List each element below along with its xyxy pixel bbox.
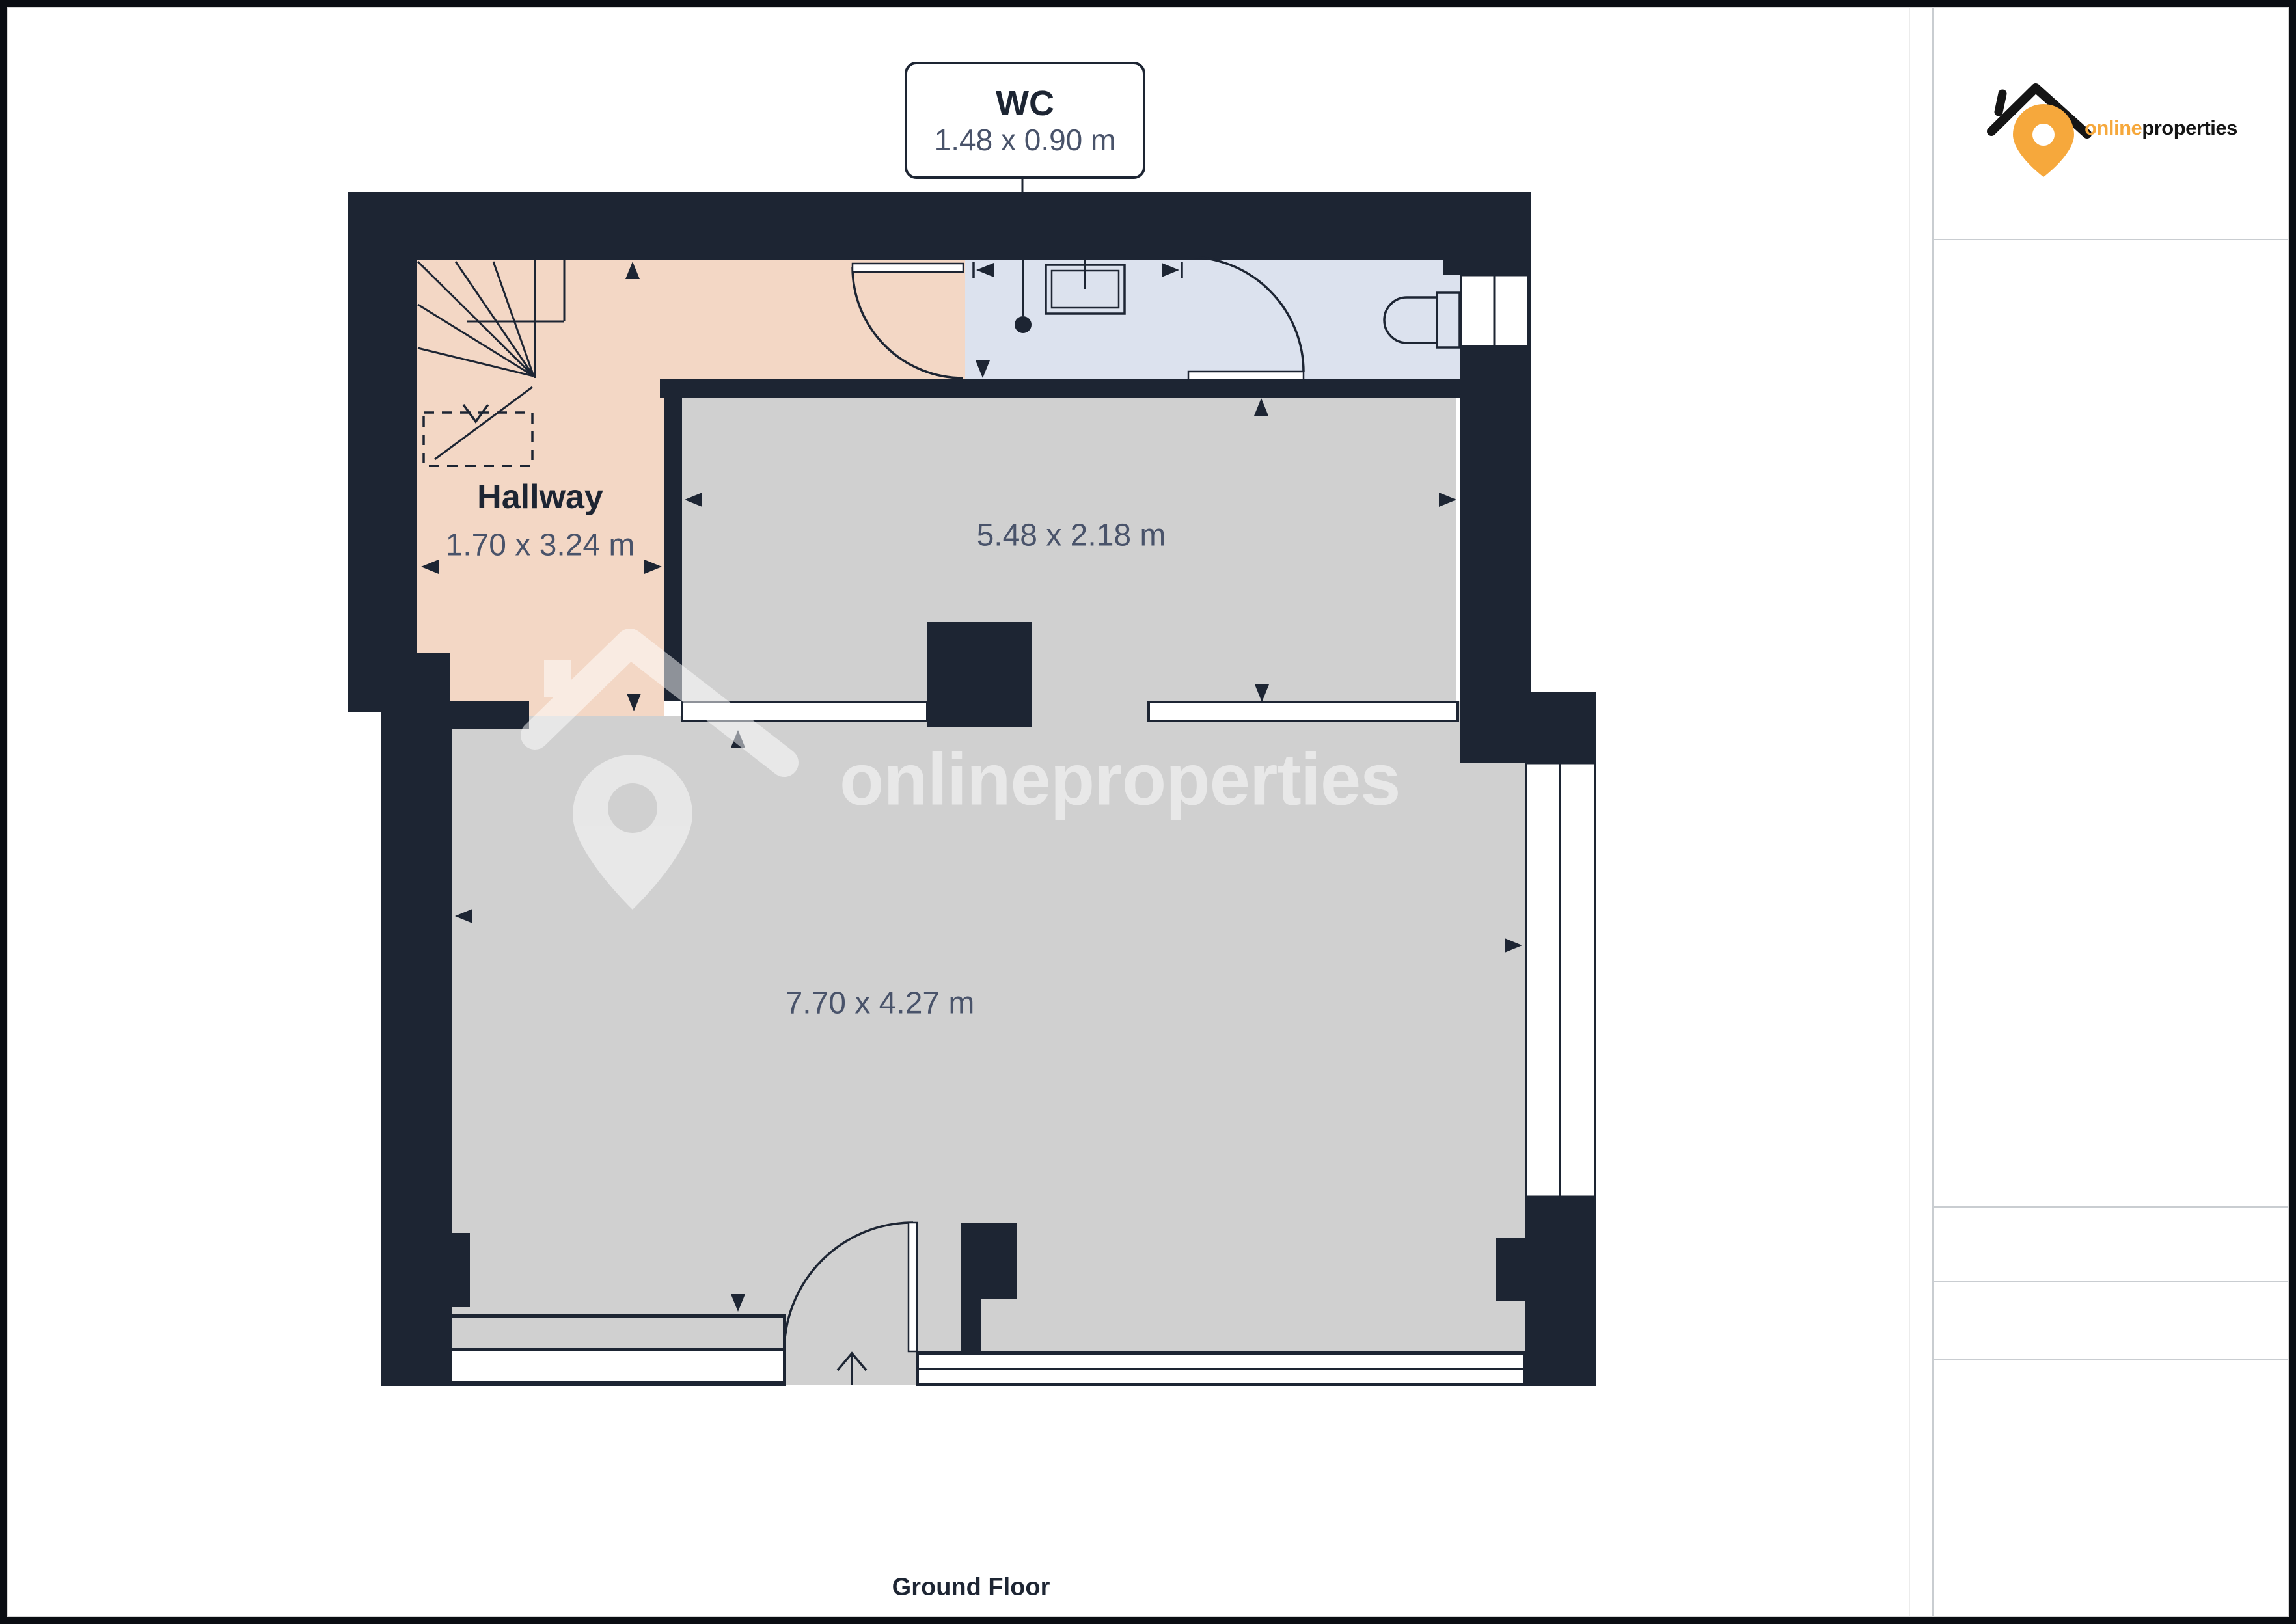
main-room-dimensions: 7.70 x 4.27 m (786, 986, 975, 1022)
watermark-text: onlineproperties (840, 738, 1400, 822)
brand-name-primary: online (2084, 116, 2142, 139)
hallway-room-name: Hallway (477, 478, 603, 517)
floorplan-page: WC 1.48 x 0.90 m Hallway 1.70 x 3.24 m 5… (0, 0, 2296, 1624)
floor-title: Ground Floor (892, 1574, 1050, 1602)
wc-room-dimensions: 1.48 x 0.90 m (935, 125, 1116, 155)
wc-room-name: WC (996, 86, 1054, 121)
window-right (1526, 763, 1595, 1197)
top-room-dimensions: 5.48 x 2.18 m (977, 518, 1166, 554)
wc-label-box: WC 1.48 x 0.90 m (905, 62, 1145, 179)
hallway-room-dimensions: 1.70 x 3.24 m (446, 528, 635, 563)
brand-logo-icon (1991, 88, 2087, 177)
brand-wordmark: onlineproperties (2084, 116, 2237, 140)
window-bottom-right (916, 1351, 1525, 1386)
window-bottom-left (452, 1314, 786, 1386)
brand-name-secondary: properties (2142, 116, 2237, 139)
window-wc (1461, 275, 1528, 346)
sidebar-dividers (1909, 7, 2289, 1617)
